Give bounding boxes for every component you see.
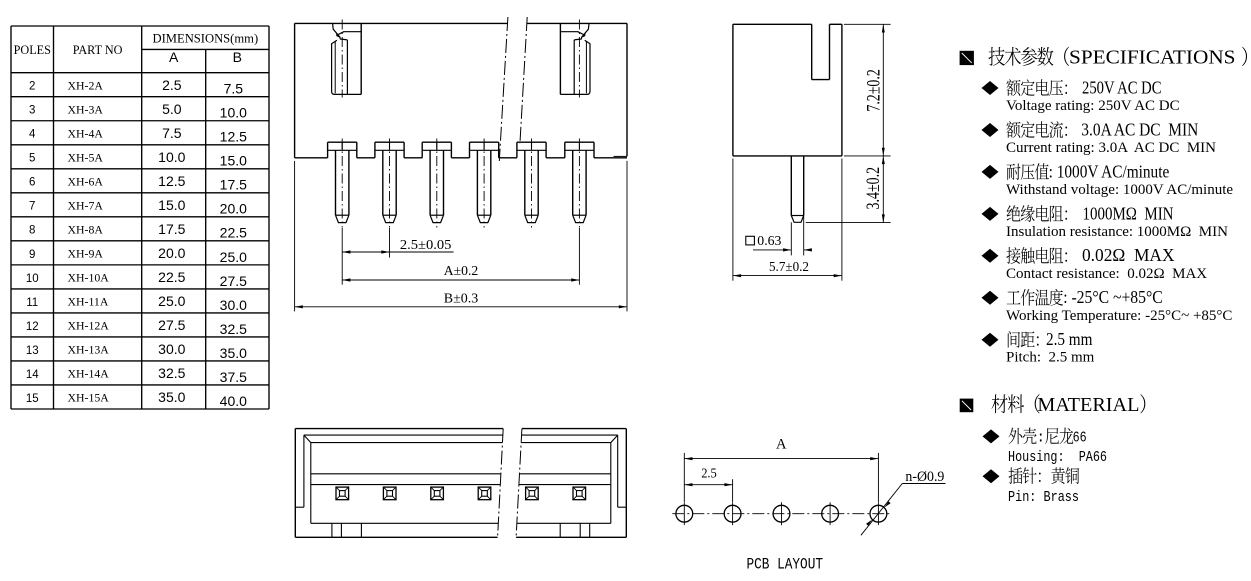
svg-text:MATERIAL: MATERIAL — [1037, 395, 1139, 416]
svg-text:Current rating: 3.0A AC DC M: Current rating: 3.0A AC DC MIN — [1006, 140, 1216, 156]
svg-text:POLES: POLES — [14, 43, 51, 57]
svg-text:32.5: 32.5 — [158, 365, 185, 381]
svg-text:7.5: 7.5 — [224, 81, 244, 97]
svg-text:XH-14A: XH-14A — [68, 367, 110, 381]
svg-text:XH-12A: XH-12A — [68, 319, 110, 333]
svg-text:Contact resistance: 0.02Ω MA: Contact resistance: 0.02Ω MAX — [1006, 266, 1207, 282]
svg-text:B: B — [233, 49, 242, 65]
svg-text:XH-10A: XH-10A — [68, 270, 110, 284]
svg-text:0.63: 0.63 — [757, 233, 781, 248]
svg-text:B±0.3: B±0.3 — [444, 291, 479, 306]
svg-text:XH-15A: XH-15A — [68, 391, 110, 405]
svg-text:n-Ø0.9: n-Ø0.9 — [905, 469, 944, 485]
svg-text:10: 10 — [26, 273, 39, 285]
svg-text:PART NO: PART NO — [73, 43, 123, 57]
svg-text:22.5: 22.5 — [158, 269, 185, 285]
svg-text:Insulation resistance: 1000MΩ: Insulation resistance: 1000MΩ MIN — [1006, 224, 1228, 240]
svg-text:Pin: Brass: Pin: Brass — [1008, 490, 1079, 506]
svg-text:2.5: 2.5 — [701, 466, 717, 481]
svg-text:XH-13A: XH-13A — [68, 343, 110, 357]
svg-text:XH-11A: XH-11A — [68, 294, 109, 308]
svg-text:22.5: 22.5 — [220, 225, 247, 241]
svg-text:4: 4 — [29, 129, 36, 141]
svg-text:XH-2A: XH-2A — [68, 78, 104, 92]
svg-text:30.0: 30.0 — [158, 341, 185, 357]
svg-text:XH-4A: XH-4A — [68, 126, 104, 140]
svg-text:1000MΩ MIN: 1000MΩ MIN — [1083, 203, 1174, 223]
svg-text:5.7±0.2: 5.7±0.2 — [769, 259, 809, 274]
svg-text:12.5: 12.5 — [158, 173, 185, 189]
svg-text:25.0: 25.0 — [158, 293, 185, 309]
svg-text:2.5 mm: 2.5 mm — [1046, 329, 1093, 349]
svg-text:XH-7A: XH-7A — [68, 198, 104, 212]
svg-text:2.5: 2.5 — [162, 77, 182, 93]
svg-text:32.5: 32.5 — [220, 321, 247, 337]
svg-text:10.0: 10.0 — [220, 105, 247, 121]
svg-text:11: 11 — [26, 297, 38, 309]
svg-text:XH-6A: XH-6A — [68, 174, 104, 188]
svg-text:Housing: PA66: Housing: PA66 — [1008, 450, 1107, 466]
svg-text:12: 12 — [26, 321, 39, 333]
svg-text:XH-8A: XH-8A — [68, 222, 104, 236]
svg-text:XH-3A: XH-3A — [68, 102, 104, 116]
svg-text:SPECIFICATIONS: SPECIFICATIONS — [1069, 48, 1236, 69]
svg-text:2.5±0.05: 2.5±0.05 — [400, 237, 452, 252]
svg-text:XH-5A: XH-5A — [68, 150, 104, 164]
svg-text:35.0: 35.0 — [158, 389, 185, 405]
svg-text:Working Temperature: -25°C~ +8: Working Temperature: -25°C~ +85°C — [1006, 308, 1232, 324]
svg-text:15.0: 15.0 — [220, 153, 247, 169]
svg-text:14: 14 — [26, 369, 39, 381]
svg-text:Pitch: 2.5 mm: Pitch: 2.5 mm — [1006, 350, 1095, 366]
svg-text:250V AC DC: 250V AC DC — [1082, 77, 1162, 97]
svg-text:5.0: 5.0 — [162, 101, 182, 117]
svg-text:35.0: 35.0 — [220, 345, 247, 361]
svg-text:17.5: 17.5 — [220, 177, 247, 193]
svg-text:25.0: 25.0 — [220, 249, 247, 265]
svg-text:3.4±0.2: 3.4±0.2 — [863, 167, 884, 210]
svg-text:3.0A AC DC MIN: 3.0A AC DC MIN — [1081, 119, 1198, 139]
svg-text:15.0: 15.0 — [158, 197, 185, 213]
svg-text:37.5: 37.5 — [220, 369, 247, 385]
svg-text:15: 15 — [26, 393, 39, 405]
svg-text:: -25°C ~+85°C: : -25°C ~+85°C — [1063, 287, 1163, 307]
svg-text:7.2±0.2: 7.2±0.2 — [863, 69, 884, 112]
svg-text:27.5: 27.5 — [158, 317, 185, 333]
svg-text:10.0: 10.0 — [158, 149, 185, 165]
svg-text:66: 66 — [1073, 431, 1087, 447]
svg-text:7: 7 — [29, 201, 35, 213]
svg-text:40.0: 40.0 — [220, 393, 247, 409]
svg-text:Voltage rating: 250V AC DC: Voltage rating: 250V AC DC — [1006, 98, 1180, 114]
svg-text:A: A — [169, 49, 179, 65]
svg-text:A±0.2: A±0.2 — [444, 263, 479, 278]
svg-text:9: 9 — [29, 249, 35, 261]
svg-text:3: 3 — [29, 105, 35, 117]
svg-text:6: 6 — [29, 177, 35, 189]
svg-text:2: 2 — [29, 81, 35, 93]
svg-text:: 1000V AC/minute: : 1000V AC/minute — [1049, 161, 1170, 181]
svg-text:Withstand voltage: 1000V AC/mi: Withstand voltage: 1000V AC/minute — [1006, 182, 1233, 198]
svg-text:20.0: 20.0 — [158, 245, 185, 261]
svg-text:DIMENSIONS(mm): DIMENSIONS(mm) — [153, 32, 259, 46]
svg-text:27.5: 27.5 — [220, 273, 247, 289]
svg-text:7.5: 7.5 — [162, 125, 182, 141]
svg-text:A: A — [776, 437, 787, 453]
svg-text::: : — [1036, 431, 1045, 447]
svg-text:30.0: 30.0 — [220, 297, 247, 313]
svg-text:20.0: 20.0 — [220, 201, 247, 217]
svg-text:XH-9A: XH-9A — [68, 246, 104, 260]
svg-text:12.5: 12.5 — [220, 129, 247, 145]
svg-text:PCB LAYOUT: PCB LAYOUT — [747, 555, 824, 573]
svg-text:0.02Ω MAX: 0.02Ω MAX — [1082, 245, 1175, 265]
svg-text:13: 13 — [26, 345, 39, 357]
svg-text:17.5: 17.5 — [158, 221, 185, 237]
svg-text:8: 8 — [29, 225, 35, 237]
svg-text:5: 5 — [29, 153, 35, 165]
